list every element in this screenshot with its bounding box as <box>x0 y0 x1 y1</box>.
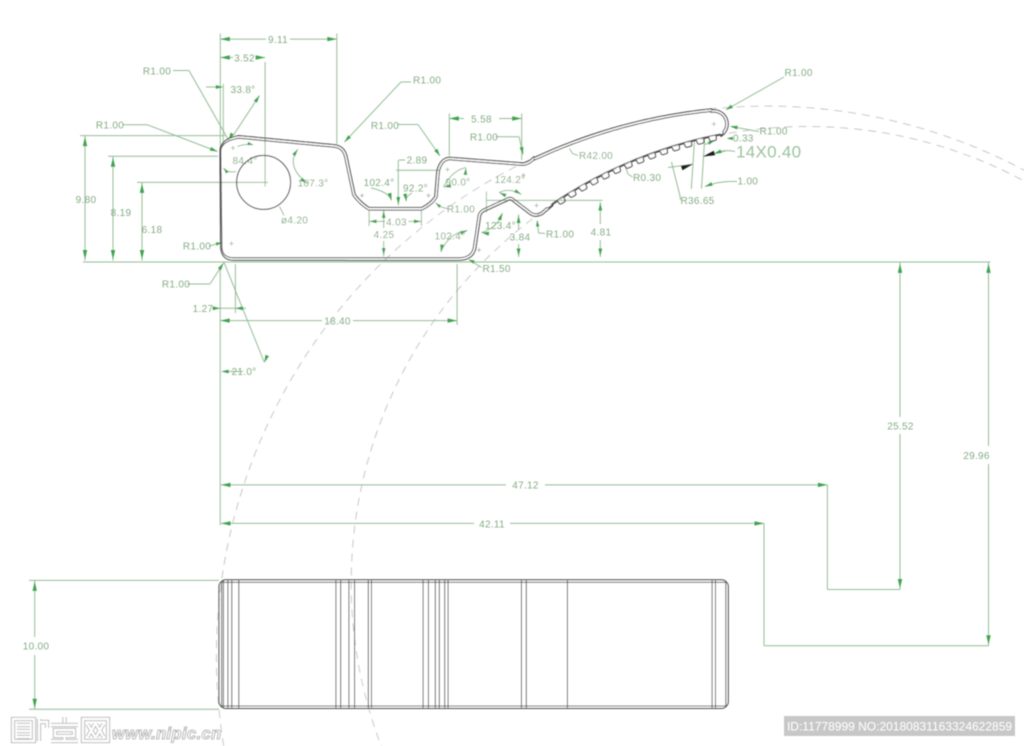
svg-text:R1.00: R1.00 <box>183 242 211 253</box>
svg-text:R1.00: R1.00 <box>371 121 399 132</box>
svg-text:9.11: 9.11 <box>268 35 288 46</box>
svg-text:R1.00: R1.00 <box>760 127 788 138</box>
svg-text:6.18: 6.18 <box>142 225 163 236</box>
svg-text:102.4°: 102.4° <box>364 178 395 189</box>
svg-text:R1.00: R1.00 <box>470 133 498 144</box>
svg-text:R36.65: R36.65 <box>681 196 715 207</box>
svg-text:18.40: 18.40 <box>324 317 351 328</box>
svg-text:3.84: 3.84 <box>510 233 531 244</box>
svg-text:102.4°: 102.4° <box>435 232 466 243</box>
svg-text:R1.00: R1.00 <box>546 230 574 241</box>
svg-text:107.3°: 107.3° <box>298 179 329 190</box>
svg-text:92.2°: 92.2° <box>403 184 428 195</box>
svg-text:www.nipic.cn: www.nipic.cn <box>112 725 222 743</box>
svg-text:10.00: 10.00 <box>23 642 50 653</box>
svg-text:R1.00: R1.00 <box>162 280 190 291</box>
svg-text:5.58: 5.58 <box>471 115 492 126</box>
svg-text:1.27: 1.27 <box>193 304 214 315</box>
svg-text:2.89: 2.89 <box>407 156 428 167</box>
svg-text:R0.30: R0.30 <box>633 173 661 184</box>
svg-text:R1.00: R1.00 <box>447 205 475 216</box>
svg-text:R42.00: R42.00 <box>579 151 613 162</box>
svg-text:3.52: 3.52 <box>234 54 255 65</box>
svg-text:14X0.40: 14X0.40 <box>736 143 801 162</box>
svg-text:4.25: 4.25 <box>374 230 395 241</box>
svg-text:21.0°: 21.0° <box>232 367 257 378</box>
svg-text:8.19: 8.19 <box>111 208 132 219</box>
svg-text:R1.00: R1.00 <box>143 67 171 78</box>
svg-text:R1.00: R1.00 <box>785 68 813 79</box>
svg-text:ID:11778999 NO:201808311633246: ID:11778999 NO:20180831163324622859 <box>787 720 1012 734</box>
svg-text:4.03: 4.03 <box>386 218 407 229</box>
svg-text:42.11: 42.11 <box>479 520 505 531</box>
svg-text:R1.00: R1.00 <box>413 76 441 87</box>
svg-text:124.2°: 124.2° <box>495 175 526 186</box>
svg-text:25.52: 25.52 <box>887 422 914 433</box>
svg-text:1.00: 1.00 <box>738 177 759 188</box>
svg-text:47.12: 47.12 <box>512 481 539 492</box>
svg-text:ø4.20: ø4.20 <box>281 216 308 227</box>
svg-text:123.4°: 123.4° <box>485 221 516 232</box>
svg-text:R1.00: R1.00 <box>96 121 124 132</box>
svg-text:90.0°: 90.0° <box>446 178 471 189</box>
svg-text:4.81: 4.81 <box>591 228 612 239</box>
svg-text:9.80: 9.80 <box>76 195 97 206</box>
svg-text:29.96: 29.96 <box>963 451 990 462</box>
svg-text:R1.50: R1.50 <box>483 264 511 275</box>
svg-text:33.8°: 33.8° <box>231 85 256 96</box>
